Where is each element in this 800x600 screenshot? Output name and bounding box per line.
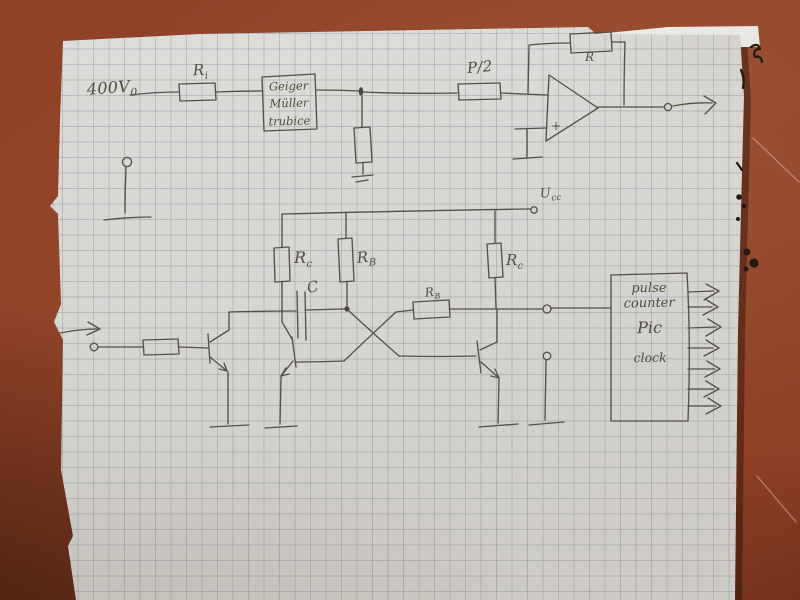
label-ucc: Ucc xyxy=(539,186,561,204)
transistor-t1 xyxy=(208,312,249,427)
input-arrow xyxy=(60,322,100,335)
geiger-line-1: Geiger xyxy=(269,78,309,96)
counter-line-4: clock xyxy=(633,350,666,366)
label-capacitor-c: C xyxy=(306,279,321,296)
counter-line-2: counter xyxy=(624,296,675,312)
geiger-tube-text: Geiger Müller trubice xyxy=(262,77,315,130)
geiger-line-3: trubice xyxy=(268,112,310,130)
label-rb-cross: RB xyxy=(424,285,441,302)
transistor-t3 xyxy=(477,310,518,427)
ground-reference-terminal xyxy=(529,352,564,425)
counter-line-1: pulse xyxy=(631,281,666,297)
label-400v: 400V0 xyxy=(86,78,137,101)
label-rc-right: Rc xyxy=(506,253,523,272)
ground-symbol-mid xyxy=(352,175,373,182)
opamp-noninverting-ground xyxy=(513,128,546,159)
counter-output-pins xyxy=(688,284,721,414)
label-rb-top: RB xyxy=(356,249,377,270)
input-terminal xyxy=(90,343,143,351)
opamp-output xyxy=(598,96,716,114)
probe-terminal-ground xyxy=(104,157,151,220)
ink-marks-on-table xyxy=(736,45,762,272)
ucc-rail xyxy=(282,207,537,214)
junction-dot-top xyxy=(359,87,457,95)
label-resistor-ri: Ri xyxy=(193,63,209,83)
counter-line-3: Pic xyxy=(637,318,662,337)
label-rc-left: Rc xyxy=(294,250,312,270)
photo-of-schematic: 400V0 Ri Geiger Müller trubice P/2 R + U… xyxy=(0,0,800,600)
pulldown-resistor xyxy=(354,96,372,174)
table-scratches xyxy=(753,138,799,522)
output-node xyxy=(491,305,611,313)
coupling-capacitor xyxy=(229,291,344,340)
resistor-rc-left xyxy=(274,214,290,322)
pulse-counter-text: pulse counter Pic clock xyxy=(612,280,686,365)
label-feedback-resistor: R xyxy=(585,51,594,63)
transistor-t2 xyxy=(265,322,344,428)
geiger-line-2: Müller xyxy=(269,95,308,113)
resistor-ri xyxy=(179,83,262,101)
opamp-plus-sign: + xyxy=(551,120,561,132)
resistor-rb-cross xyxy=(413,300,491,319)
label-resistor-p2: P/2 xyxy=(466,59,493,76)
resistor-p2 xyxy=(458,83,547,100)
resistor-rb-top xyxy=(338,212,354,306)
input-series-resistor xyxy=(143,339,208,355)
resistor-rc-right xyxy=(487,211,503,308)
cross-coupling-wires xyxy=(344,310,476,361)
